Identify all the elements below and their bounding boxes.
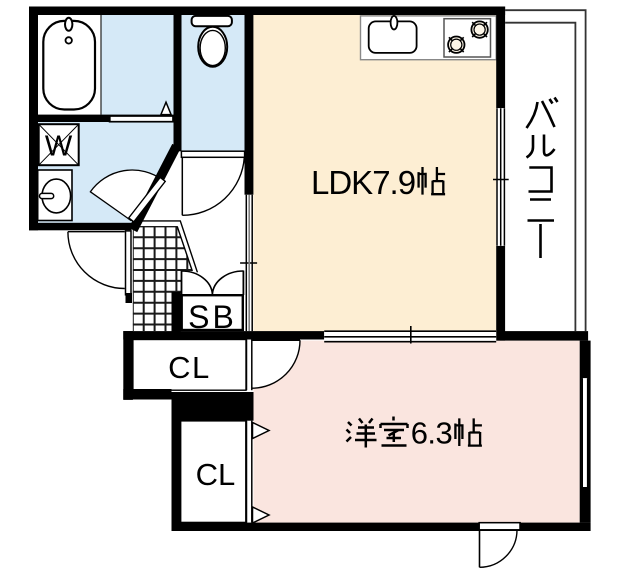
svg-text:LDK7.9: LDK7.9 xyxy=(311,164,415,201)
svg-text:SB: SB xyxy=(188,299,237,335)
svg-text:6.3: 6.3 xyxy=(411,415,453,450)
svg-text:CL: CL xyxy=(168,350,211,385)
svg-text:CL: CL xyxy=(196,457,236,492)
svg-text:W: W xyxy=(45,131,73,163)
